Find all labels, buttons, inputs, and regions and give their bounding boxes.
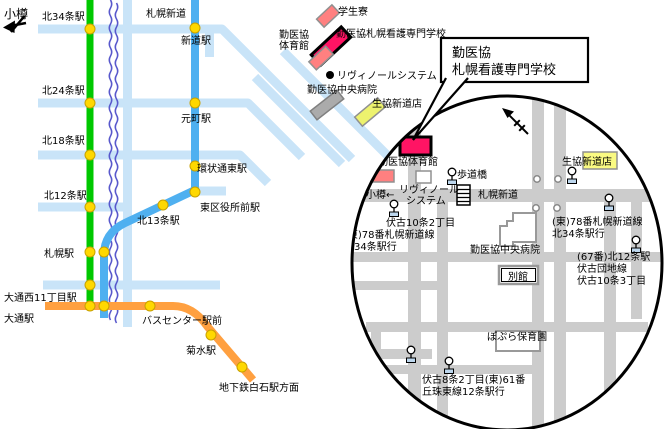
bus-stop-head <box>605 194 613 202</box>
bus-stop-head <box>568 167 576 175</box>
bus-stop-base <box>605 206 614 211</box>
label-rivinol-line1: リヴィノール <box>399 183 459 196</box>
label-station-sapporo: 札幌駅 <box>44 247 74 260</box>
bus-stop-base <box>390 212 399 217</box>
bus-stop-base <box>407 358 416 363</box>
signal-circle <box>534 176 540 182</box>
bus-stop-base <box>445 369 454 374</box>
station-dot-sapporo-namboku <box>85 247 95 257</box>
river <box>109 0 117 323</box>
label-station-kanjodorihigashi: 環状通東駅 <box>197 162 247 175</box>
station-dot-kikusui <box>206 330 216 340</box>
river-wave-left <box>109 0 111 320</box>
label-station-kita13: 北13条駅 <box>137 214 180 227</box>
station-dot-kita34 <box>85 24 95 34</box>
station-dot-shindo <box>190 23 200 33</box>
label-inset-sapporo-shindo: 札幌新道 <box>478 188 518 201</box>
bus-stop-icon <box>390 200 399 216</box>
label-coop-store: 生協新道店 <box>372 97 422 110</box>
rivinol-dot <box>326 71 334 79</box>
station-dot-kita13 <box>158 200 168 210</box>
street-vertical-3 <box>532 96 544 429</box>
label-dormitory: 学生寮 <box>338 5 368 18</box>
label-nursing-school: 勤医協札幌看護専門学校 <box>336 27 446 40</box>
bridge-base <box>448 180 457 185</box>
label-rivinol-system: リヴィノールシステム <box>337 69 437 82</box>
label-bus67-line1: (67番)北12条駅 <box>577 250 650 263</box>
north-arrow-head <box>502 108 514 118</box>
label-annex: 別館 <box>508 270 528 283</box>
bus-stop-head <box>390 200 398 208</box>
label-station-higashikuyakushomae: 東区役所前駅 <box>200 201 260 214</box>
station-dot-kita12 <box>85 202 95 212</box>
label-bus78-east-line2: 北34条駅行 <box>552 227 605 240</box>
label-nursery: ぽぷら保育園 <box>487 330 547 343</box>
label-bus61-line1: 伏古8条2丁目(東)61番 <box>422 373 525 386</box>
transit-access-map: 小樽 北34条駅 札幌新道 新道駅 北24条駅 元町駅 北18条駅 環状通東駅 … <box>0 0 670 429</box>
signal-circle <box>554 205 560 211</box>
label-fushiko-10-2: 伏古10条2丁目 <box>386 216 455 229</box>
station-dot-motomachi <box>190 98 200 108</box>
station-dot-higashikuyakushomae <box>190 187 200 197</box>
station-dot-shiroishi-dir <box>237 362 247 372</box>
label-inset-gym: 勤医協体育館 <box>378 155 438 168</box>
bus-stop-head <box>407 346 415 354</box>
bus-stop-head <box>632 236 640 244</box>
label-shiroishi-direction: 地下鉄白石駅方面 <box>219 381 299 394</box>
dormitory-building <box>317 5 340 27</box>
street-vertical-4 <box>554 96 566 429</box>
detail-inset-circle: 勤医協体育館 歩道橋 至小樽← リヴィノール システム 札幌新道 伏古10条2丁… <box>352 96 662 429</box>
station-dot-kita18 <box>85 150 95 160</box>
label-rivinol-line2: システム <box>406 195 446 207</box>
station-dot-sapporo-toho <box>99 247 109 257</box>
inset-graphics: 勤医協体育館 歩道橋 至小樽← リヴィノール システム 札幌新道 伏古10条2丁… <box>352 96 662 429</box>
label-station-odori: 大通駅 <box>4 312 34 325</box>
label-station-kita34: 北34条駅 <box>42 10 85 23</box>
label-hospital: 勤医協中央病院 <box>307 83 377 96</box>
inset-gymnasium-building <box>400 137 431 155</box>
bridge-head <box>448 168 456 176</box>
label-gym-line1: 勤医協 <box>279 28 309 41</box>
label-station-kita12: 北12条駅 <box>44 189 87 202</box>
road-kita24 <box>38 103 302 157</box>
label-station-kita24: 北24条駅 <box>42 84 85 97</box>
station-dot-odori-toho <box>99 301 109 311</box>
pedestrian-bridge-icon <box>448 168 457 184</box>
label-inset-coop: 生協新道店 <box>562 155 612 168</box>
label-bus67-line3: 伏古10条3丁目 <box>577 274 646 287</box>
bus-stop-icon <box>568 167 577 183</box>
label-bus78-east-line1: (東)78番札幌新道線 <box>552 215 643 228</box>
street-horizontal-3 <box>352 281 438 290</box>
inset-white-building <box>416 171 431 183</box>
station-dot-buscenter <box>145 301 155 311</box>
inset-hospital-building <box>500 213 536 246</box>
label-pedestrian-bridge: 歩道橋 <box>457 168 487 181</box>
label-bus78-west-line1: (東)78番札幌新道線 <box>352 228 435 241</box>
bus-stop-head <box>445 357 453 365</box>
label-otaru: 小樽 <box>4 6 28 21</box>
label-station-kikusui: 菊水駅 <box>186 345 216 357</box>
label-gym-line2: 体育館 <box>279 39 309 52</box>
label-station-kita18: 北18条駅 <box>42 134 85 147</box>
river-wave-right <box>115 3 117 323</box>
label-bus61-line2: 丘珠東線12条駅行 <box>422 385 505 398</box>
label-station-buscenter: バスセンター駅前 <box>142 314 222 327</box>
label-station-motomachi: 元町駅 <box>181 113 211 125</box>
label-bus78-west-line2: 北34条駅行 <box>352 240 397 253</box>
station-dot-kita24 <box>85 98 95 108</box>
label-inset-hospital: 勤医協中央病院 <box>470 243 540 256</box>
signal-circle <box>555 176 561 182</box>
label-station-odorinishi11: 大通西11丁目駅 <box>4 291 77 304</box>
signal-circle <box>533 205 539 211</box>
gymnasium-building <box>309 46 333 70</box>
label-sapporo-shindo-road: 札幌新道 <box>146 7 186 20</box>
station-dot-odorinishi11 <box>85 280 95 290</box>
bus-stop-base <box>568 179 577 184</box>
label-bus67-line2: 伏古団地線 <box>577 262 627 275</box>
label-station-shindo: 新道駅 <box>181 34 211 47</box>
north-arrow-icon <box>502 108 528 134</box>
station-dot-odori-namboku <box>85 301 95 311</box>
